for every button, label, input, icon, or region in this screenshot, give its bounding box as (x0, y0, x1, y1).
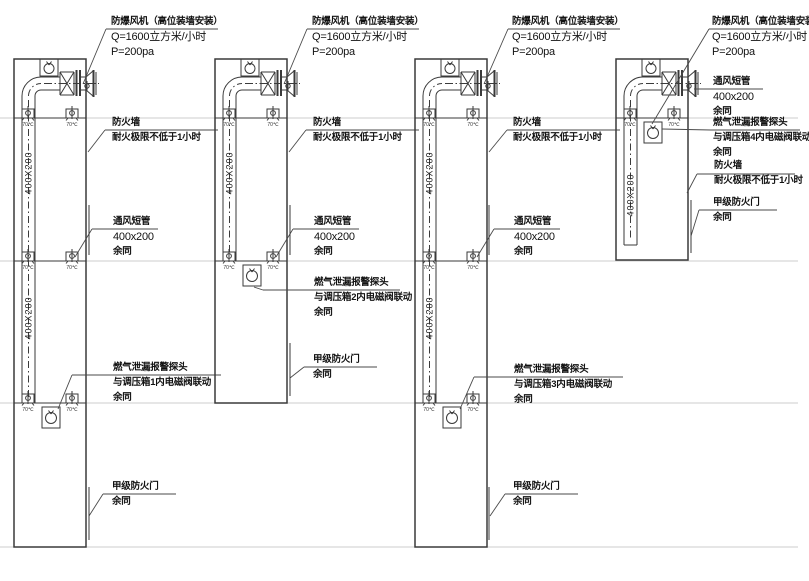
short-pipe-label-line2: 400x200 (113, 230, 154, 245)
fire-damper-icon: 70℃ (624, 106, 636, 128)
fan-label-4: 防爆风机（高位装墙安装） Q=1600立方米/小时 P=200pa (712, 15, 809, 60)
fire-door-label-2: 甲级防火门 余同 (313, 353, 360, 383)
duct-size-text: 400X200 (24, 151, 34, 194)
firewall-label-line1: 防火墙 (513, 116, 602, 131)
damper-temp-text: 70℃ (223, 265, 235, 271)
firewall-label-line2: 耐火极限不低于1小时 (513, 131, 602, 146)
damper-temp-text: 70℃ (22, 265, 34, 271)
fire-damper-icon: 70℃ (267, 249, 279, 271)
fire-damper-icon: 70℃ (467, 391, 479, 413)
gas-detector-label-1: 燃气泄漏报警探头 与调压箱1内电磁阀联动 余同 (113, 361, 211, 406)
short-pipe-label-line3: 余同 (514, 245, 555, 260)
duct-size-text: 400X200 (225, 151, 235, 194)
gas-label-line2: 与调压箱3内电磁阀联动 (514, 378, 612, 393)
short-pipe-label-1: 通风短管 400x200 余同 (113, 215, 154, 260)
gas-detector-icon (443, 407, 461, 428)
gas-detector-label-3: 燃气泄漏报警探头 与调压箱3内电磁阀联动 余同 (514, 363, 612, 408)
fire-door-label-4: 甲级防火门 余同 (713, 196, 760, 226)
door-label-line1: 甲级防火门 (112, 480, 159, 495)
duct-size-text: 400X200 (24, 296, 34, 339)
fan-label-3: 防爆风机（高位装墙安装） Q=1600立方米/小时 P=200pa (512, 15, 624, 60)
fan-label-line2: Q=1600立方米/小时 (712, 30, 809, 45)
short-pipe-label-4: 通风短管 400x200 余同 (713, 75, 754, 120)
fire-damper-icon: 70℃ (66, 249, 78, 271)
roof-vent-icon (441, 59, 459, 76)
damper-temp-text: 70℃ (467, 407, 479, 413)
damper-temp-text: 70℃ (66, 122, 78, 128)
damper-temp-text: 70℃ (22, 407, 34, 413)
fan-label-line1: 防爆风机（高位装墙安装） (512, 15, 624, 30)
gas-detector-label-4: 燃气泄漏报警探头 与调压箱4内电磁阀联动 余同 (713, 116, 809, 161)
fire-damper-icon: 70℃ (22, 391, 34, 413)
damper-temp-text: 70℃ (467, 122, 479, 128)
short-pipe-label-line1: 通风短管 (713, 75, 754, 90)
short-pipe-label-line2: 400x200 (514, 230, 555, 245)
short-pipe-label-line1: 通风短管 (514, 215, 555, 230)
firewall-label-3: 防火墙 耐火极限不低于1小时 (513, 116, 602, 146)
fan-label-line3: P=200pa (512, 45, 624, 60)
hvac-elevation-drawing: 400X200400X20070℃70℃70℃70℃70℃70℃400X2007… (0, 0, 809, 581)
damper-temp-text: 70℃ (668, 122, 680, 128)
damper-temp-text: 70℃ (624, 122, 636, 128)
fire-damper-icon: 70℃ (223, 106, 235, 128)
short-pipe-label-line2: 400x200 (314, 230, 355, 245)
damper-temp-text: 70℃ (423, 407, 435, 413)
damper-temp-text: 70℃ (66, 265, 78, 271)
fire-damper-icon: 70℃ (467, 106, 479, 128)
door-label-line1: 甲级防火门 (513, 480, 560, 495)
door-label-line2: 余同 (513, 495, 560, 510)
short-pipe-label-line3: 余同 (314, 245, 355, 260)
damper-temp-text: 70℃ (22, 122, 34, 128)
exhaust-fan-icon (624, 70, 701, 97)
fire-door-label-1: 甲级防火门 余同 (112, 480, 159, 510)
gas-detector-label-2: 燃气泄漏报警探头 与调压箱2内电磁阀联动 余同 (314, 276, 412, 321)
firewall-label-2: 防火墙 耐火极限不低于1小时 (313, 116, 402, 146)
fan-label-line3: P=200pa (312, 45, 424, 60)
fire-door-label-3: 甲级防火门 余同 (513, 480, 560, 510)
fire-damper-icon: 70℃ (66, 391, 78, 413)
duct-size-text: 400X200 (626, 173, 636, 216)
fire-damper-icon: 70℃ (423, 249, 435, 271)
fire-damper-icon: 70℃ (267, 106, 279, 128)
gas-label-line1: 燃气泄漏报警探头 (514, 363, 612, 378)
damper-temp-text: 70℃ (267, 122, 279, 128)
door-label-line1: 甲级防火门 (713, 196, 760, 211)
damper-temp-text: 70℃ (423, 265, 435, 271)
damper-temp-text: 70℃ (467, 265, 479, 271)
door-label-line2: 余同 (713, 211, 760, 226)
duct-size-text: 400X200 (425, 151, 435, 194)
gas-label-line3: 余同 (514, 393, 612, 408)
fan-label-line2: Q=1600立方米/小时 (512, 30, 624, 45)
door-label-line2: 余同 (112, 495, 159, 510)
gas-label-line3: 余同 (314, 306, 412, 321)
fan-label-2: 防爆风机（高位装墙安装） Q=1600立方米/小时 P=200pa (312, 15, 424, 60)
fire-damper-icon: 70℃ (22, 249, 34, 271)
firewall-label-line1: 防火墙 (313, 116, 402, 131)
firewall-label-4: 防火墙 耐火极限不低于1小时 (714, 159, 803, 189)
assembly-1: 400X200400X20070℃70℃70℃70℃70℃70℃ (14, 29, 221, 547)
firewall-label-line1: 防火墙 (714, 159, 803, 174)
fire-damper-icon: 70℃ (668, 106, 680, 128)
assembly-3: 400X200400X20070℃70℃70℃70℃70℃70℃ (415, 29, 623, 547)
fire-damper-icon: 70℃ (66, 106, 78, 128)
gas-label-line2: 与调压箱2内电磁阀联动 (314, 291, 412, 306)
damper-temp-text: 70℃ (423, 122, 435, 128)
damper-temp-text: 70℃ (223, 122, 235, 128)
short-pipe-label-2: 通风短管 400x200 余同 (314, 215, 355, 260)
fire-damper-icon: 70℃ (467, 249, 479, 271)
short-pipe-label-line1: 通风短管 (314, 215, 355, 230)
gas-label-line2: 与调压箱4内电磁阀联动 (713, 131, 809, 146)
gas-label-line1: 燃气泄漏报警探头 (713, 116, 809, 131)
fire-damper-icon: 70℃ (223, 249, 235, 271)
fan-label-line3: P=200pa (111, 45, 223, 60)
gas-label-line3: 余同 (113, 391, 211, 406)
firewall-label-line2: 耐火极限不低于1小时 (112, 131, 201, 146)
short-pipe-label-3: 通风短管 400x200 余同 (514, 215, 555, 260)
roof-vent-icon (241, 59, 259, 76)
short-pipe-label-line1: 通风短管 (113, 215, 154, 230)
duct-size-text: 400X200 (425, 296, 435, 339)
gas-detector-icon (644, 122, 662, 143)
fan-label-line1: 防爆风机（高位装墙安装） (712, 15, 809, 30)
fan-label-line1: 防爆风机（高位装墙安装） (111, 15, 223, 30)
fire-damper-icon: 70℃ (22, 106, 34, 128)
firewall-label-line2: 耐火极限不低于1小时 (714, 174, 803, 189)
firewall-label-line2: 耐火极限不低于1小时 (313, 131, 402, 146)
gas-detector-icon (42, 407, 60, 428)
roof-vent-icon (40, 59, 58, 76)
damper-temp-text: 70℃ (267, 265, 279, 271)
shaft-outline (616, 59, 688, 260)
fan-label-line2: Q=1600立方米/小时 (312, 30, 424, 45)
gas-label-line1: 燃气泄漏报警探头 (113, 361, 211, 376)
short-pipe-label-line2: 400x200 (713, 90, 754, 105)
fan-label-line3: P=200pa (712, 45, 809, 60)
gas-label-line1: 燃气泄漏报警探头 (314, 276, 412, 291)
firewall-label-line1: 防火墙 (112, 116, 201, 131)
door-label-line2: 余同 (313, 368, 360, 383)
gas-label-line2: 与调压箱1内电磁阀联动 (113, 376, 211, 391)
firewall-label-1: 防火墙 耐火极限不低于1小时 (112, 116, 201, 146)
fan-label-line2: Q=1600立方米/小时 (111, 30, 223, 45)
damper-temp-text: 70℃ (66, 407, 78, 413)
roof-vent-icon (642, 59, 660, 76)
fan-label-line1: 防爆风机（高位装墙安装） (312, 15, 424, 30)
fire-damper-icon: 70℃ (423, 391, 435, 413)
fan-label-1: 防爆风机（高位装墙安装） Q=1600立方米/小时 P=200pa (111, 15, 223, 60)
fire-damper-icon: 70℃ (423, 106, 435, 128)
short-pipe-label-line3: 余同 (113, 245, 154, 260)
shaft-outline (215, 59, 287, 403)
door-label-line1: 甲级防火门 (313, 353, 360, 368)
gas-detector-icon (243, 265, 261, 286)
